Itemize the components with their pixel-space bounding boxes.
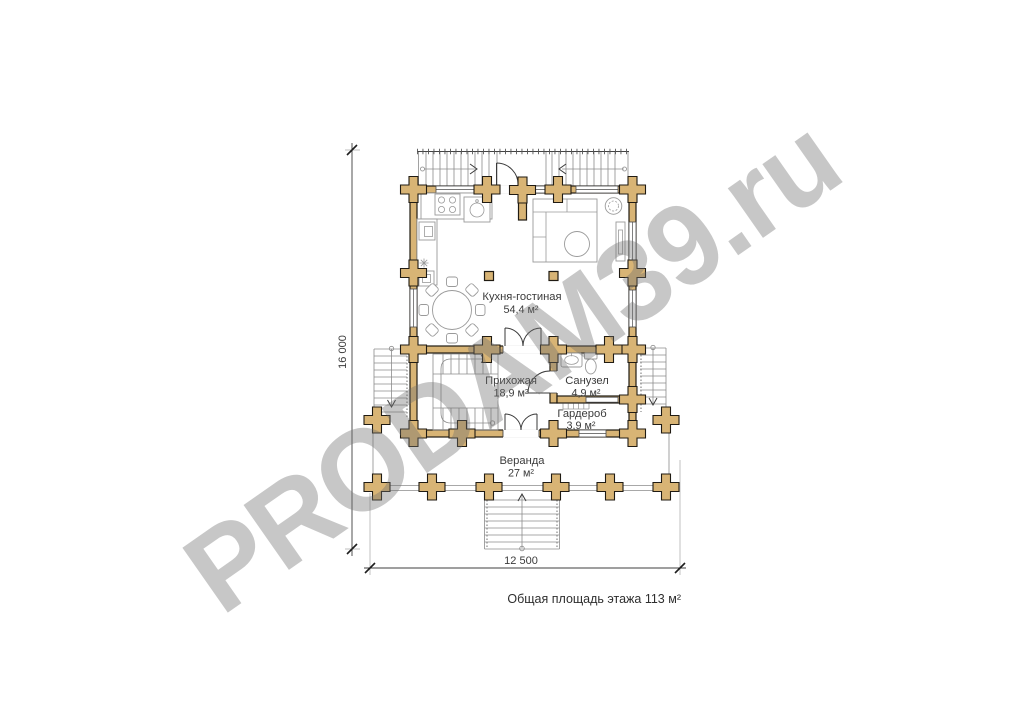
- room-area-veranda: 27 м²: [508, 468, 534, 480]
- kitchen-furniture: [417, 193, 492, 286]
- width-dimension-label: 12 500: [504, 555, 538, 567]
- height-dimension-label: 16 000: [337, 335, 349, 369]
- total-area-label: Общая площадь этажа 113 м²: [507, 592, 681, 606]
- floor-plan-page: 16 000 12 500 Кухня-гостиная 54,4 м² При…: [0, 0, 1024, 724]
- boiler-symbol: [420, 259, 429, 268]
- floor-plan-drawing: 16 000 12 500 Кухня-гостиная 54,4 м² При…: [0, 0, 1024, 724]
- room-area-wardrobe: 3,9 м²: [566, 420, 595, 432]
- post-left: [485, 272, 494, 281]
- entrance-steps: [485, 493, 560, 551]
- room-label-veranda: Веранда: [499, 455, 545, 467]
- door-terrace: [497, 163, 519, 186]
- stove: [435, 194, 460, 215]
- room-label-wardrobe: Гардероб: [557, 408, 606, 420]
